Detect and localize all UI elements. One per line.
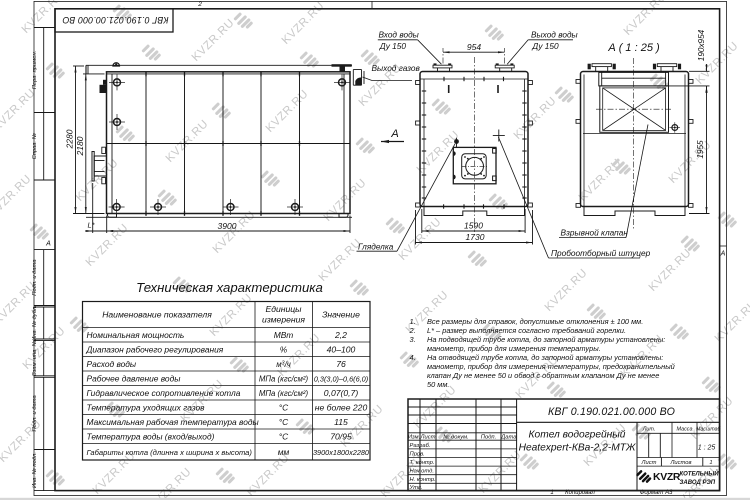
svg-text:L* – размер выполняется соглас: L* – размер выполняется согласно требова… (427, 326, 626, 335)
svg-text:Значение: Значение (322, 310, 360, 320)
svg-text:Подп. и дата: Подп. и дата (32, 259, 38, 296)
svg-text:Подп. и дата: Подп. и дата (32, 394, 38, 431)
svg-text:76: 76 (336, 359, 346, 369)
svg-text:мм: мм (278, 447, 290, 457)
svg-text:4.: 4. (410, 353, 416, 362)
svg-text:70/95: 70/95 (330, 431, 352, 441)
svg-text:1955: 1955 (696, 140, 705, 159)
svg-text:1: 1 (550, 490, 553, 496)
svg-text:Формат А3: Формат А3 (640, 490, 673, 496)
svg-text:1: 1 (709, 460, 712, 466)
svg-text:115: 115 (334, 417, 348, 427)
svg-text:Пробоотборный штуцер: Пробоотборный штуцер (551, 248, 651, 258)
svg-text:0,3(3,0)–0,6(6,0): 0,3(3,0)–0,6(6,0) (314, 374, 368, 383)
svg-text:А: А (720, 251, 726, 258)
svg-text:%: % (280, 344, 288, 354)
svg-text:Справ. №: Справ. № (32, 133, 38, 159)
svg-text:Габариты котла (длинна х ширин: Габариты котла (длинна х ширина х высота… (87, 448, 253, 457)
svg-text:Копировал: Копировал (565, 490, 595, 496)
svg-text:МПа (кгс/см²): МПа (кгс/см²) (259, 389, 309, 398)
svg-text:Все размеры для справок, допус: Все размеры для справок, допустимые откл… (427, 317, 643, 326)
svg-text:Дата: Дата (500, 434, 517, 440)
svg-text:°С: °С (279, 402, 289, 412)
svg-text:2,2: 2,2 (334, 330, 347, 340)
svg-text:КВГ 0.190.021.00.000 ВО: КВГ 0.190.021.00.000 ВО (62, 15, 168, 25)
svg-text:Heatexpert-КВа-2,2-МТЖ: Heatexpert-КВа-2,2-МТЖ (519, 443, 636, 454)
svg-text:Ду 150: Ду 150 (379, 41, 407, 51)
svg-text:Изм.: Изм. (408, 434, 420, 440)
svg-text:50 мм.: 50 мм. (427, 380, 449, 389)
svg-text:Максимальная рабочая температу: Максимальная рабочая температура воды (87, 417, 259, 427)
svg-text:Ду 150: Ду 150 (531, 41, 559, 51)
svg-text:3.: 3. (410, 335, 416, 344)
svg-text:манометр, прибор для измерения: манометр, прибор для измерения температу… (427, 362, 675, 371)
svg-text:Масса: Масса (677, 427, 693, 433)
svg-text:Масштаб: Масштаб (696, 427, 721, 433)
svg-text:Нач.отд.: Нач.отд. (410, 469, 434, 475)
svg-text:Т. контр.: Т. контр. (410, 460, 435, 466)
svg-text:Лит.: Лит. (642, 427, 656, 433)
svg-text:°С: °С (279, 431, 289, 441)
svg-text:190х954: 190х954 (697, 29, 706, 61)
svg-text:1590: 1590 (464, 221, 483, 231)
svg-text:954: 954 (467, 42, 481, 52)
svg-text:№ докум.: № докум. (443, 434, 469, 440)
svg-text:КОТЕЛЬНЫЙ: КОТЕЛЬНЫЙ (680, 470, 720, 478)
svg-text:Диапазон рабочего регулировани: Диапазон рабочего регулирования (86, 344, 224, 354)
svg-text:Утв.: Утв. (409, 485, 423, 491)
svg-text:клапан Ду не менее 50 и обвод: клапан Ду не менее 50 и обвод с обратным… (427, 371, 659, 380)
svg-text:Расход воды: Расход воды (87, 359, 137, 369)
svg-text:А: А (390, 128, 398, 140)
svg-text:МВт: МВт (274, 330, 294, 340)
svg-text:Наименование показателя: Наименование показателя (102, 310, 212, 320)
svg-text:2280: 2280 (65, 129, 75, 149)
svg-text:Листов: Листов (669, 460, 691, 466)
svg-text:Котел водогрейный: Котел водогрейный (529, 430, 626, 441)
svg-text:3900: 3900 (218, 221, 237, 231)
svg-text:Выход газов: Выход газов (372, 63, 421, 73)
svg-text:измерения: измерения (262, 315, 305, 325)
svg-text:0,07(0,7): 0,07(0,7) (324, 388, 359, 398)
svg-text:Инв. № дубл.: Инв. № дубл. (32, 305, 38, 341)
svg-text:Гляделка: Гляделка (358, 241, 394, 251)
svg-text:Разраб.: Разраб. (410, 443, 431, 449)
svg-text:Выход воды: Выход воды (531, 29, 578, 39)
svg-text:°С: °С (279, 417, 289, 427)
svg-text:Лист: Лист (641, 460, 657, 466)
svg-text:А ( 1 : 25 ): А ( 1 : 25 ) (607, 42, 660, 54)
svg-text:Температура уходящих газов: Температура уходящих газов (87, 402, 206, 412)
svg-text:Лист: Лист (420, 434, 436, 440)
svg-text:манометр, прибор для измерения: манометр, прибор для измерения температу… (427, 344, 601, 353)
svg-text:Рабочее давление воды: Рабочее давление воды (87, 373, 181, 383)
svg-text:1730: 1730 (466, 232, 485, 242)
svg-text:Взам. инв. №: Взам. инв. № (32, 340, 38, 376)
svg-text:ЗАВОД РЭП: ЗАВОД РЭП (680, 480, 716, 486)
svg-text:Подп.: Подп. (481, 434, 496, 440)
svg-text:КВГ 0.190.021.00.000 ВО: КВГ 0.190.021.00.000 ВО (548, 406, 675, 418)
svg-text:KVZR: KVZR (653, 472, 681, 483)
svg-text:Гидравлическое сопротивление к: Гидравлическое сопротивление котла (87, 388, 241, 398)
svg-text:не более 220: не более 220 (315, 402, 368, 412)
svg-text:На отводящей трубе котла, до з: На отводящей трубе котла, до запорной ар… (427, 353, 663, 362)
svg-text:На подводящей трубе котла, до: На подводящей трубе котла, до запорной а… (427, 335, 665, 344)
svg-text:Вход воды: Вход воды (379, 29, 419, 39)
svg-text:Температура воды (вход/выход): Температура воды (вход/выход) (87, 431, 215, 441)
svg-text:А: А (45, 241, 51, 248)
svg-text:Техническая характеристика: Техническая характеристика (136, 280, 323, 295)
svg-text:1 : 25: 1 : 25 (698, 445, 716, 452)
svg-text:2180: 2180 (75, 136, 85, 156)
svg-text:1.: 1. (410, 317, 416, 326)
svg-text:40–100: 40–100 (327, 344, 356, 354)
svg-text:Перв. примен.: Перв. примен. (32, 51, 38, 90)
svg-text:Номинальная мощность: Номинальная мощность (87, 330, 185, 340)
svg-text:МПа (кгс/см²): МПа (кгс/см²) (259, 374, 309, 383)
svg-text:2.: 2. (409, 326, 416, 335)
svg-text:Инв. № подл.: Инв. № подл. (32, 452, 38, 488)
svg-text:Пров.: Пров. (410, 451, 425, 457)
svg-text:Взрывной клапан: Взрывной клапан (561, 227, 629, 237)
svg-text:3900х1800х2280: 3900х1800х2280 (313, 448, 369, 457)
svg-text:Н. контр.: Н. контр. (410, 477, 436, 483)
svg-text:Единицы: Единицы (265, 304, 302, 314)
svg-text:L*: L* (87, 220, 95, 229)
svg-text:2: 2 (197, 1, 202, 8)
